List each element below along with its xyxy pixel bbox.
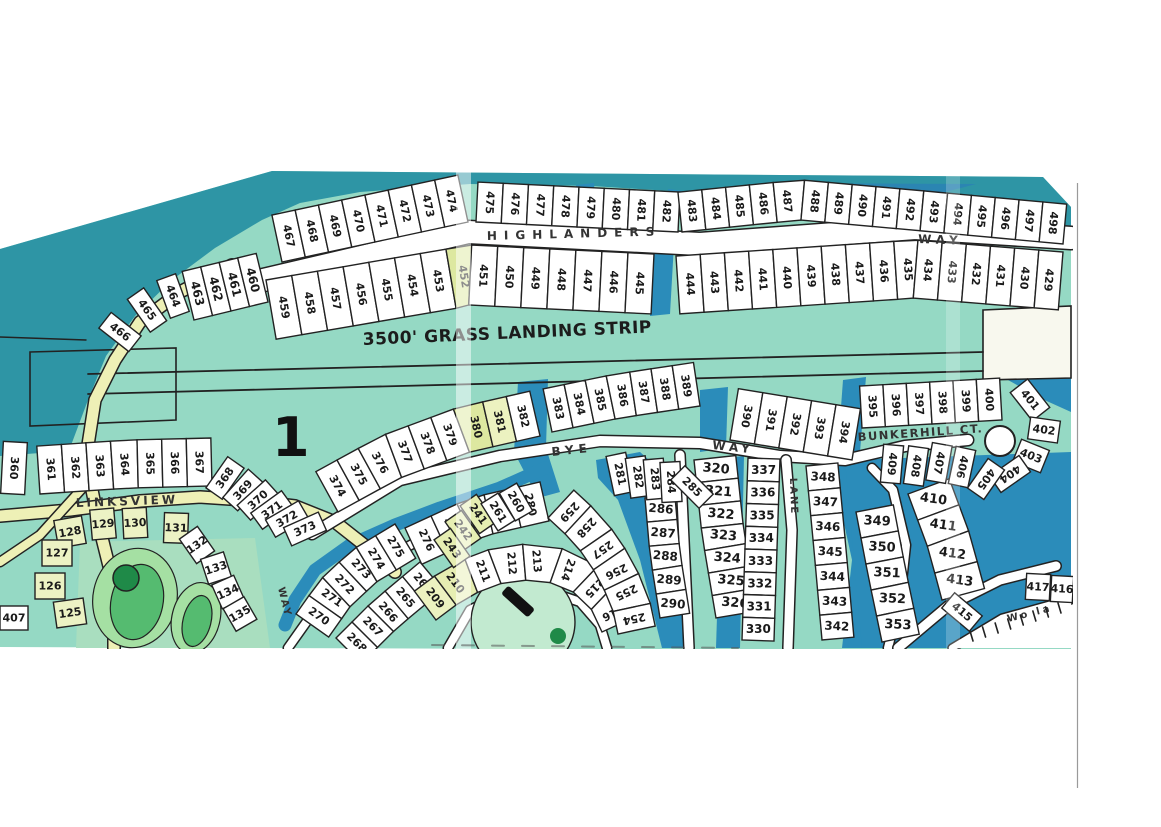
lot-number-367: 367 (192, 451, 206, 474)
lot-number-130: 130 (123, 516, 147, 530)
lot-number-448: 448 (554, 268, 568, 292)
lot-number-443: 443 (707, 271, 722, 295)
scan-fold-1 (456, 171, 471, 650)
lot-parcel-127: 127 (42, 540, 72, 566)
lot-number-330: 330 (746, 622, 771, 636)
lot-number-333: 333 (748, 554, 773, 568)
lot-number-126: 126 (39, 580, 62, 593)
lot-number-349: 349 (863, 513, 891, 529)
lot-parcel-409: 409 (880, 444, 903, 484)
lot-number-348: 348 (810, 469, 836, 484)
lot-number-435: 435 (901, 258, 916, 282)
lot-number-438: 438 (828, 263, 843, 287)
lot-number-444: 444 (683, 272, 698, 296)
lot-number-343: 343 (822, 594, 848, 609)
lot-number-434: 434 (920, 258, 935, 282)
lot-number-129: 129 (91, 517, 115, 532)
lot-number-332: 332 (747, 577, 772, 591)
lot-number-324: 324 (713, 550, 741, 567)
lot-number-451: 451 (476, 264, 490, 288)
lot-number-482: 482 (659, 200, 673, 224)
lot-number-484: 484 (708, 196, 723, 221)
lot-number-442: 442 (731, 269, 746, 293)
page-bottom-margin (0, 649, 1161, 827)
lot-number-440: 440 (780, 266, 795, 290)
lot-number-436: 436 (876, 259, 891, 283)
lot-number-289: 289 (656, 572, 682, 588)
page-right-margin (1073, 0, 1161, 827)
lot-number-366: 366 (168, 451, 182, 475)
lot-number-450: 450 (502, 265, 516, 289)
lot-parcel-408: 408 (903, 446, 928, 486)
lot-number-352: 352 (879, 591, 907, 607)
lot-number-347: 347 (813, 494, 839, 509)
lot-number-286: 286 (648, 501, 674, 517)
lot-number-364: 364 (117, 452, 132, 476)
lot-parcel-407: 407 (0, 606, 28, 630)
golf-bunker-dot (550, 628, 566, 644)
lot-number-409: 409 (885, 452, 900, 476)
golf-green-ring (113, 565, 139, 591)
lot-number-362: 362 (68, 456, 82, 480)
lot-number-325: 325 (717, 572, 745, 589)
street-label-lane: LANE (787, 478, 799, 516)
lot-number-331: 331 (747, 599, 772, 613)
lot-number-441: 441 (755, 267, 770, 291)
runway-east-pad (983, 306, 1071, 380)
lot-number-492: 492 (902, 198, 917, 222)
scan-fold-2 (946, 171, 960, 649)
lot-number-429: 429 (1041, 268, 1056, 292)
lot-number-288: 288 (652, 548, 678, 564)
lot-number-400: 400 (982, 388, 996, 412)
lot-number-437: 437 (852, 261, 867, 285)
lot-number-363: 363 (93, 454, 107, 478)
plat-map-svg: 4674684694704714724734744754764774784794… (0, 0, 1161, 827)
lot-number-361: 361 (43, 457, 57, 481)
lot-number-495: 495 (974, 204, 989, 228)
plat-map-scan: 4674684694704714724734744754764774784794… (0, 0, 1161, 827)
lot-number-342: 342 (824, 619, 850, 634)
lot-parcel-416: 416 (1050, 575, 1075, 602)
lot-number-432: 432 (969, 262, 984, 286)
lot-number-335: 335 (750, 508, 775, 522)
lot-number-485: 485 (732, 194, 747, 218)
lot-number-477: 477 (533, 193, 547, 217)
lot-number-487: 487 (779, 189, 794, 213)
lot-number-481: 481 (634, 198, 648, 222)
lot-number-397: 397 (912, 392, 926, 416)
lot-number-497: 497 (1022, 209, 1037, 233)
lot-parcel-125: 125 (53, 598, 86, 628)
lot-number-431: 431 (993, 264, 1008, 288)
lot-number-407: 407 (3, 612, 26, 625)
lot-number-475: 475 (483, 191, 497, 215)
lot-number-213: 213 (529, 549, 544, 573)
lot-number-439: 439 (804, 264, 819, 288)
lot-number-489: 489 (831, 191, 846, 215)
lot-parcel-360: 360 (1, 441, 28, 494)
lot-number-395: 395 (865, 395, 879, 419)
lot-number-399: 399 (959, 389, 973, 413)
lot-number-483: 483 (684, 199, 699, 223)
lot-number-488: 488 (807, 189, 822, 213)
lot-number-445: 445 (632, 272, 646, 296)
lot-number-345: 345 (817, 544, 843, 559)
lot-number-396: 396 (889, 393, 903, 417)
lot-number-336: 336 (750, 486, 775, 500)
lot-number-212: 212 (504, 551, 519, 575)
lot-number-478: 478 (558, 195, 572, 219)
lot-number-127: 127 (46, 547, 69, 560)
lot-number-416: 416 (1050, 582, 1074, 596)
lot-number-417: 417 (1026, 580, 1050, 594)
lot-number-498: 498 (1045, 211, 1060, 235)
section-number-1: 1 (272, 406, 310, 469)
lot-number-430: 430 (1017, 266, 1032, 290)
lot-number-360: 360 (7, 456, 21, 480)
lot-number-479: 479 (584, 196, 598, 220)
lot-number-496: 496 (998, 207, 1013, 231)
lot-number-334: 334 (749, 531, 774, 545)
lot-number-476: 476 (508, 192, 522, 216)
lot-number-486: 486 (756, 192, 771, 217)
lot-number-449: 449 (528, 266, 542, 290)
lot-number-353: 353 (884, 617, 912, 633)
lot-number-323: 323 (709, 527, 737, 544)
lot-parcel-130: 130 (122, 507, 148, 538)
lot-number-131: 131 (164, 521, 187, 535)
lot-number-322: 322 (707, 506, 735, 523)
lot-number-350: 350 (868, 539, 896, 555)
lot-parcel-417: 417 (1025, 573, 1050, 600)
lot-number-290: 290 (660, 596, 686, 612)
lot-number-365: 365 (143, 452, 157, 475)
lot-number-320: 320 (702, 460, 730, 477)
lot-number-346: 346 (815, 519, 841, 534)
bunkerhill-culdesac (985, 426, 1015, 456)
lot-parcel-402: 402 (1028, 417, 1061, 443)
lot-number-490: 490 (855, 193, 870, 217)
lot-number-446: 446 (606, 270, 620, 294)
lot-number-493: 493 (926, 200, 941, 224)
lot-number-351: 351 (873, 565, 901, 581)
lot-parcel-126: 126 (35, 573, 65, 599)
lot-number-447: 447 (580, 269, 594, 293)
lot-number-491: 491 (879, 196, 894, 220)
lot-number-480: 480 (609, 197, 623, 221)
lot-number-344: 344 (820, 569, 846, 584)
lot-parcel-129: 129 (90, 508, 117, 540)
lot-number-287: 287 (650, 525, 676, 541)
lot-number-337: 337 (751, 463, 776, 477)
